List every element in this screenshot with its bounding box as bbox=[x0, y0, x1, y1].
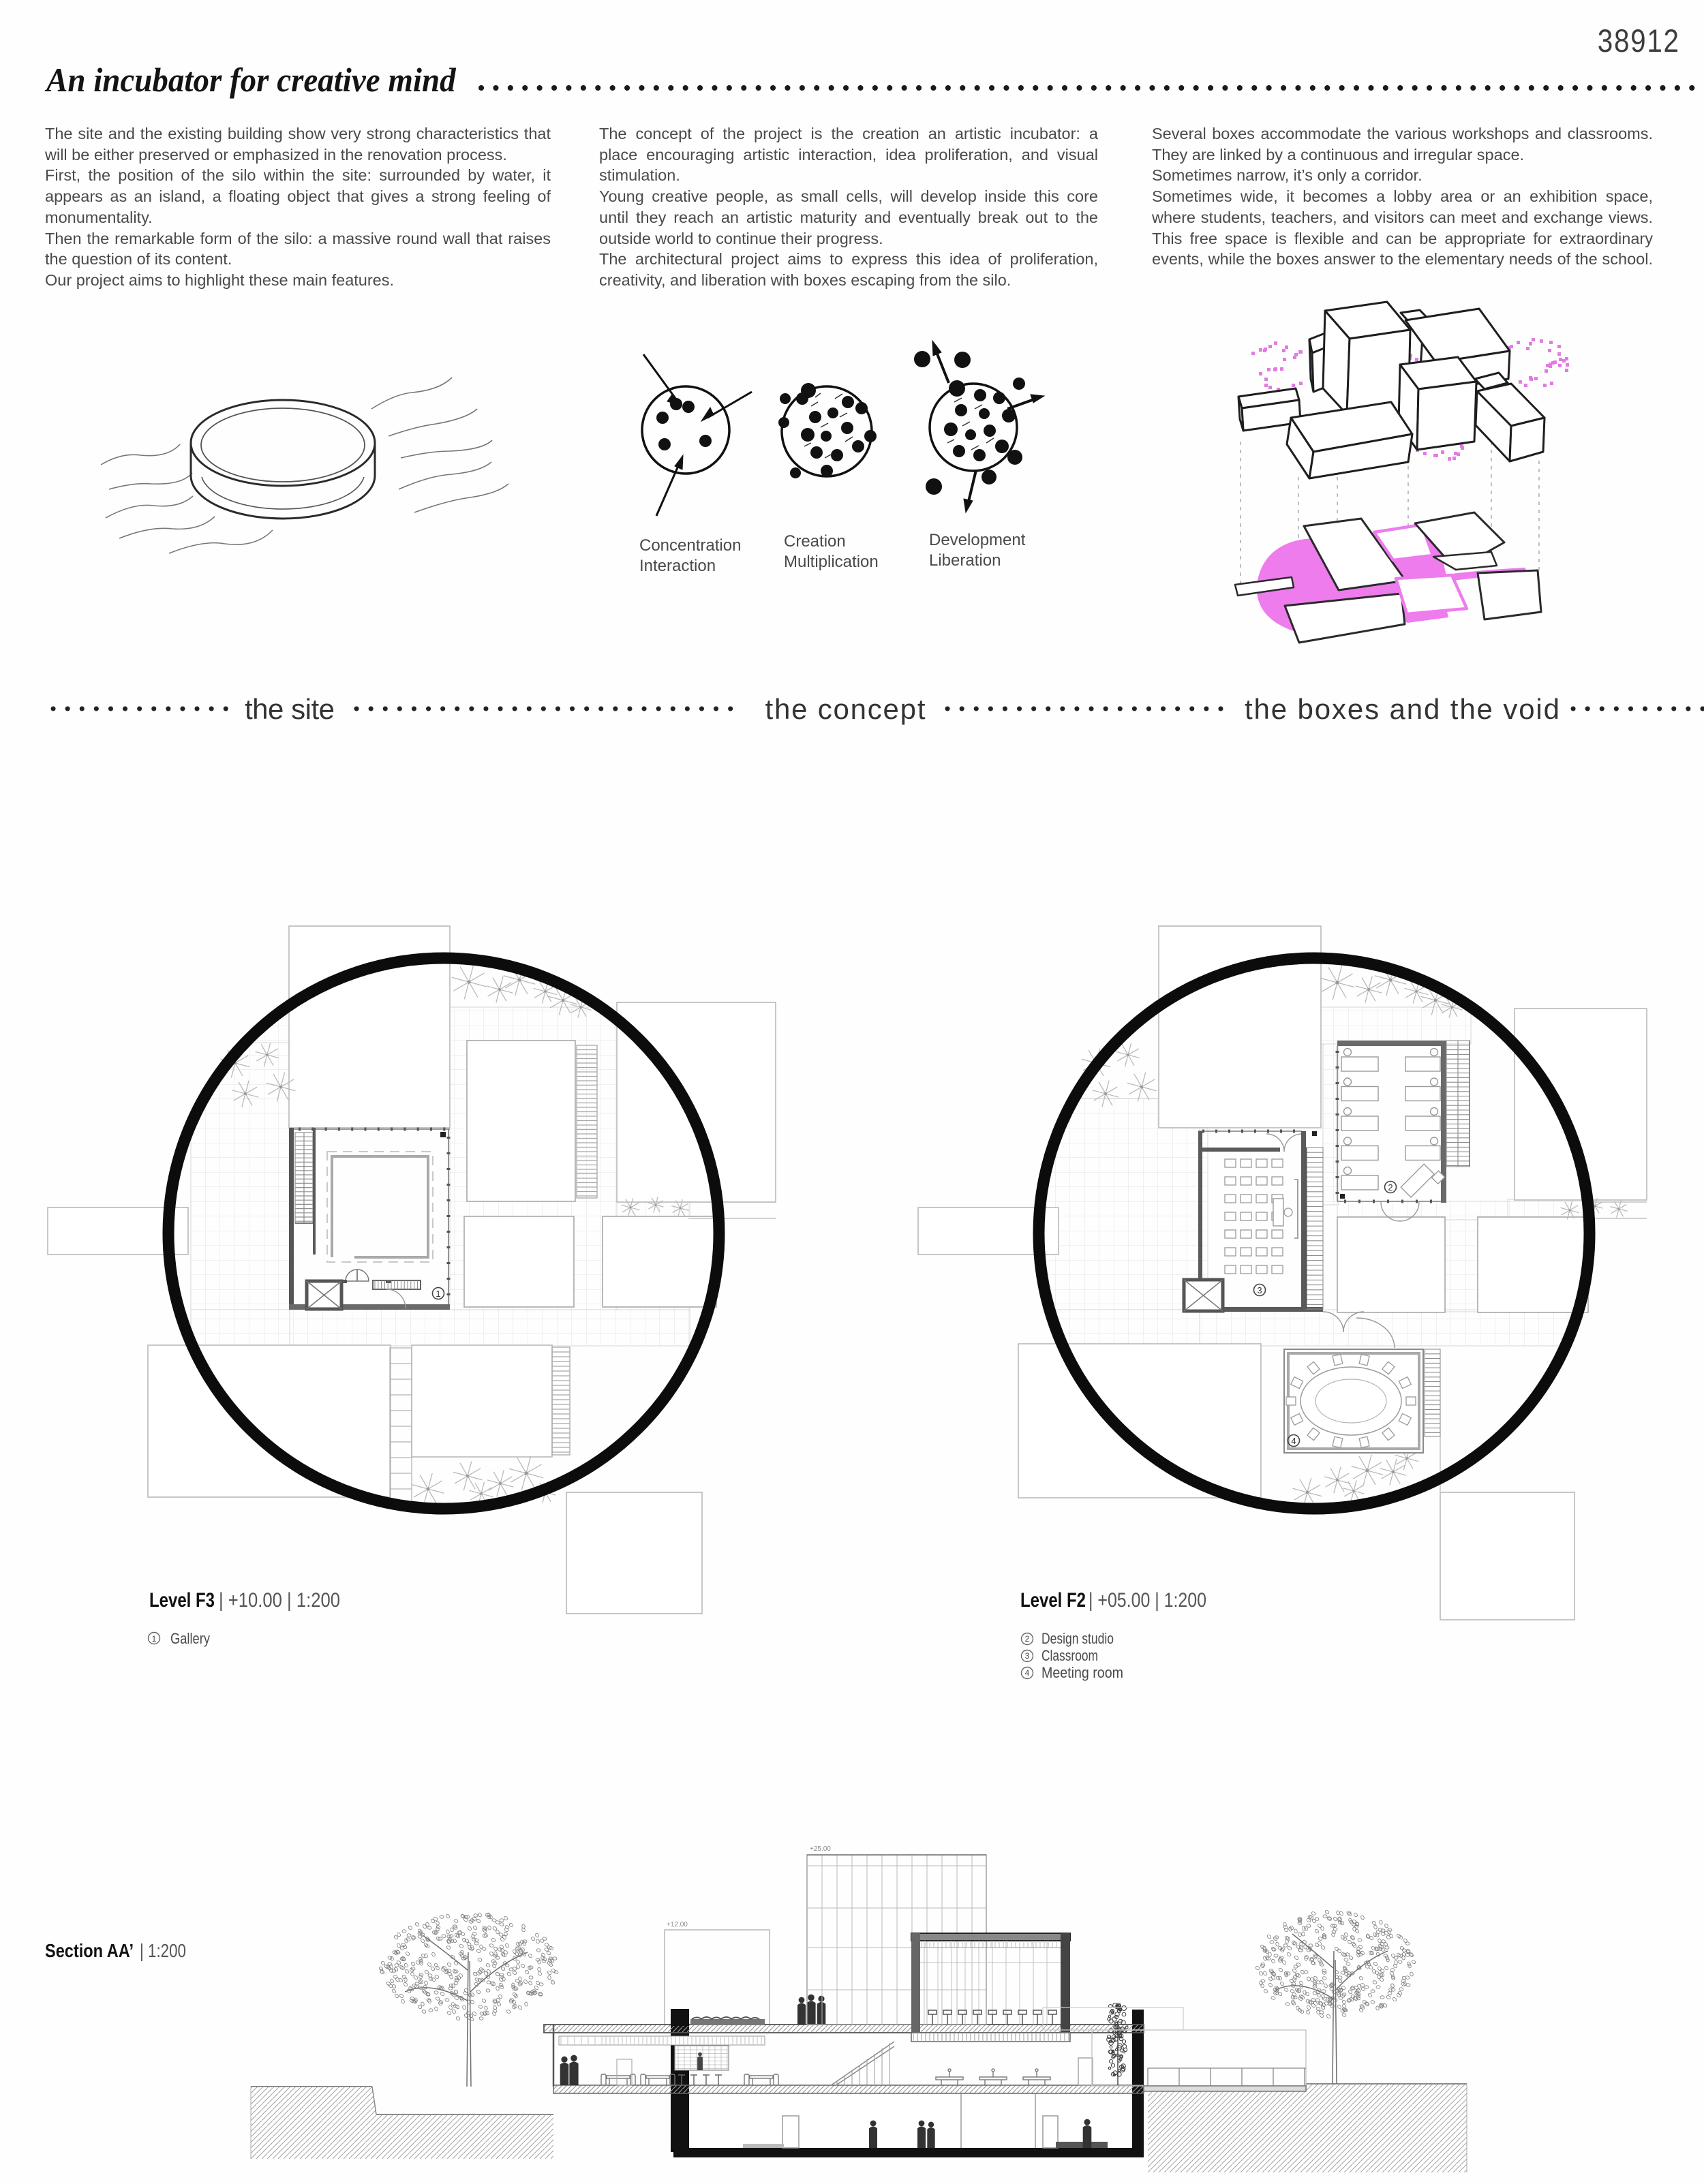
svg-text:2: 2 bbox=[1388, 1182, 1393, 1193]
svg-text:Section AA’: Section AA’ bbox=[45, 1940, 134, 1961]
svg-text:Development: Development bbox=[929, 531, 1026, 549]
svg-text:Level F2: Level F2 bbox=[1020, 1589, 1086, 1612]
svg-text:+12.00: +12.00 bbox=[667, 1921, 688, 1928]
svg-text:3: 3 bbox=[1257, 1285, 1262, 1295]
svg-text:1: 1 bbox=[152, 1634, 157, 1644]
svg-text:Creation: Creation bbox=[784, 532, 846, 551]
svg-text:| 1:200: | 1:200 bbox=[140, 1940, 186, 1961]
svg-text:Classroom: Classroom bbox=[1041, 1647, 1098, 1664]
svg-text:Gallery: Gallery bbox=[170, 1630, 210, 1647]
svg-text:Level F3: Level F3 bbox=[149, 1589, 215, 1612]
svg-text:Multiplication: Multiplication bbox=[784, 553, 879, 571]
svg-text:3: 3 bbox=[1025, 1651, 1030, 1661]
svg-text:| +10.00 | 1:200: | +10.00 | 1:200 bbox=[219, 1589, 340, 1612]
svg-text:+25.00: +25.00 bbox=[810, 1845, 831, 1853]
svg-text:Liberation: Liberation bbox=[929, 551, 1001, 570]
svg-text:Design studio: Design studio bbox=[1041, 1630, 1114, 1647]
svg-text:| +05.00 | 1:200: | +05.00 | 1:200 bbox=[1089, 1589, 1206, 1612]
svg-text:the boxes and the void: the boxes and the void bbox=[1245, 693, 1560, 725]
svg-text:Interaction: Interaction bbox=[639, 557, 716, 575]
svg-text:the site: the site bbox=[245, 693, 335, 725]
svg-text:the concept: the concept bbox=[765, 693, 926, 725]
svg-text:Meeting room: Meeting room bbox=[1041, 1664, 1123, 1681]
svg-text:2: 2 bbox=[1025, 1634, 1030, 1644]
svg-text:4: 4 bbox=[1291, 1436, 1296, 1446]
svg-text:4: 4 bbox=[1025, 1668, 1030, 1678]
svg-text:Concentration: Concentration bbox=[639, 536, 741, 555]
svg-text:1: 1 bbox=[436, 1289, 440, 1299]
